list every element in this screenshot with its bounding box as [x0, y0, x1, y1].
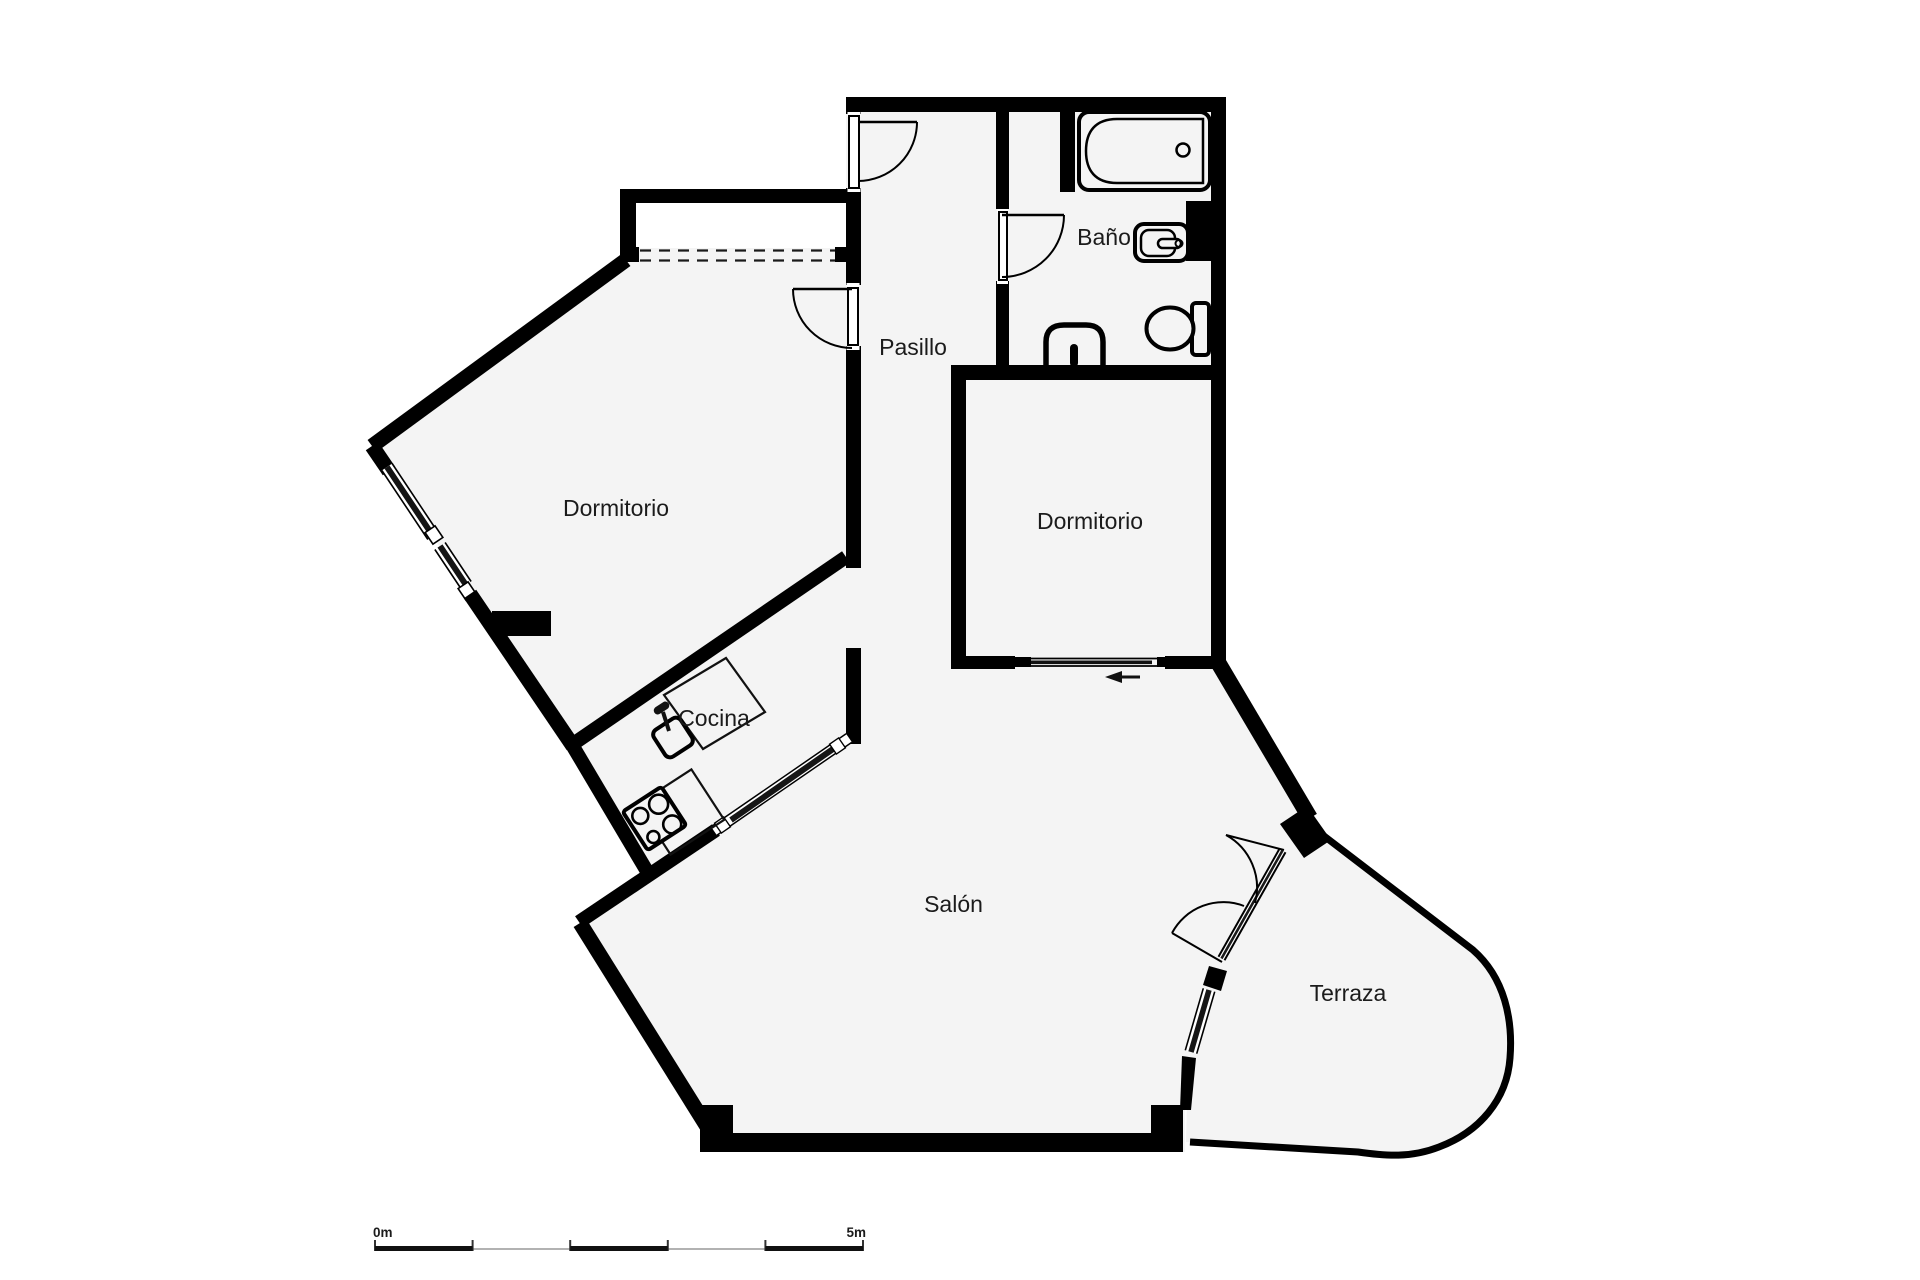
svg-text:5m: 5m [846, 1225, 866, 1240]
svg-text:Dormitorio: Dormitorio [1037, 508, 1143, 534]
svg-text:Salón: Salón [924, 891, 983, 917]
svg-text:Terraza: Terraza [1310, 980, 1387, 1006]
svg-text:Cocina: Cocina [678, 705, 750, 731]
svg-text:Pasillo: Pasillo [879, 334, 947, 360]
svg-text:Dormitorio: Dormitorio [563, 495, 669, 521]
svg-text:Baño: Baño [1077, 224, 1131, 250]
svg-text:0m: 0m [373, 1225, 393, 1240]
